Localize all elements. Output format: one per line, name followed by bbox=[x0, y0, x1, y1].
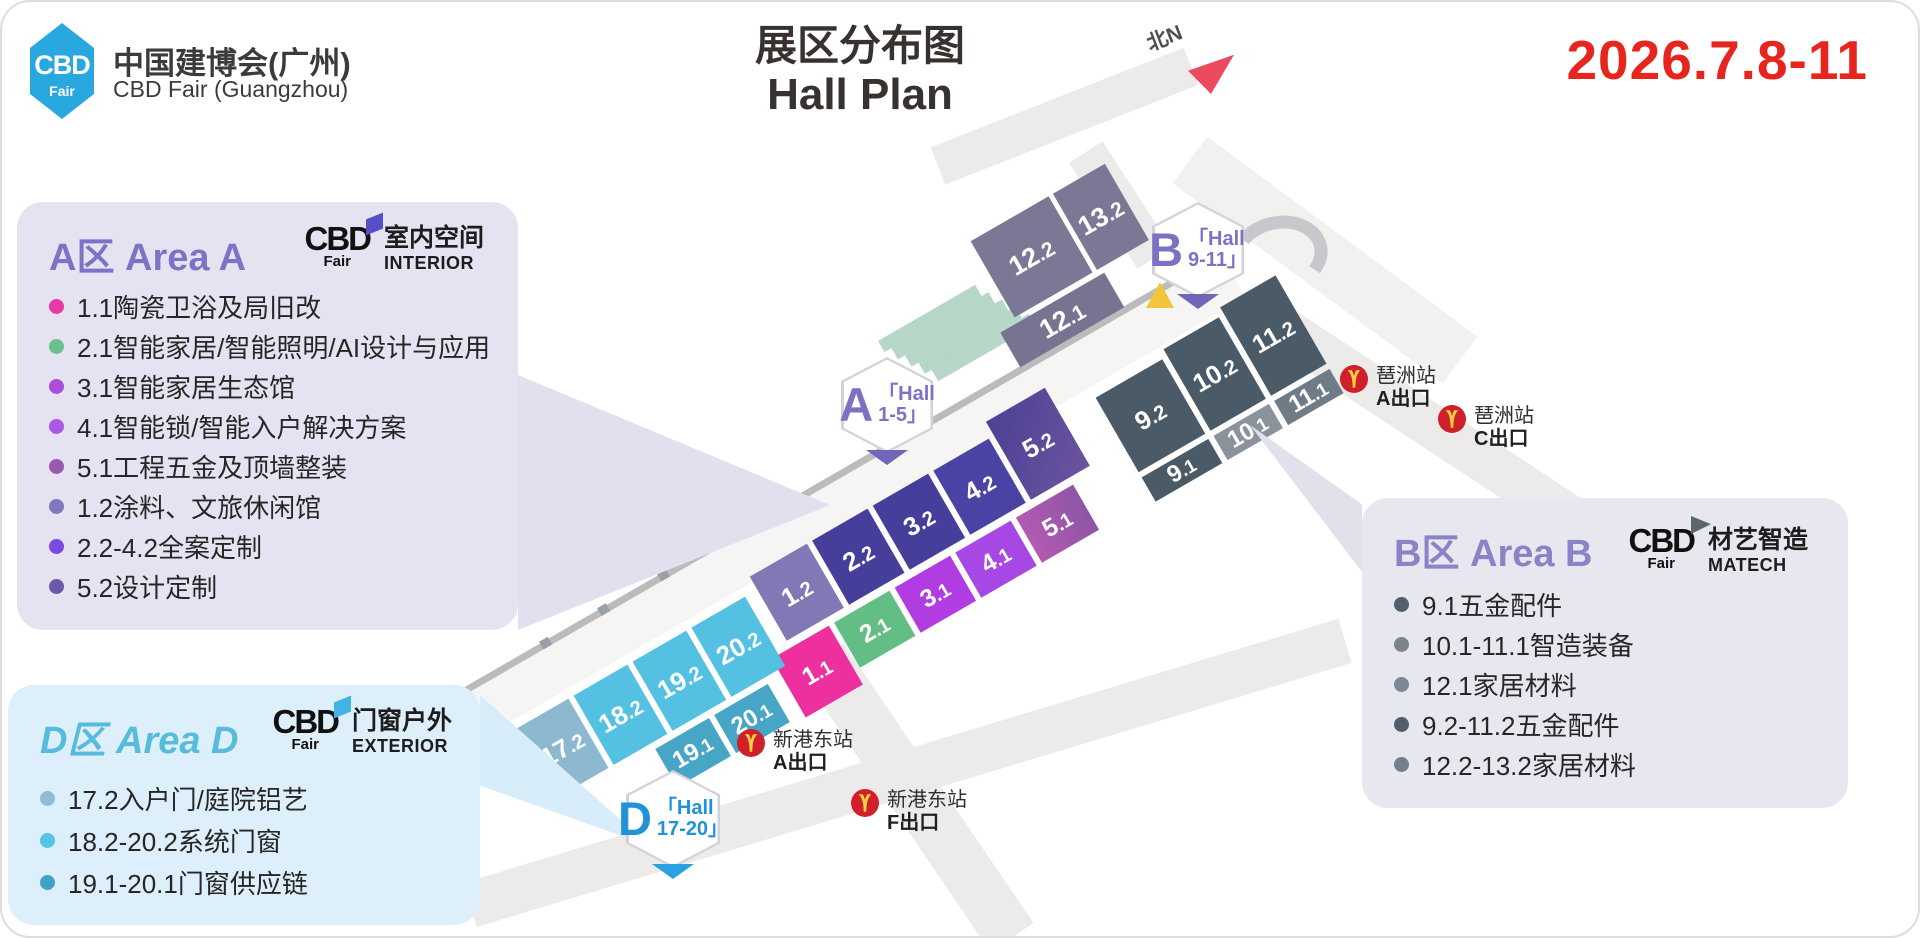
area-a-title: A区 Area A bbox=[49, 226, 246, 281]
exterior-flag-icon bbox=[334, 696, 351, 719]
brand-name-en: CBD Fair (Guangzhou) bbox=[113, 76, 348, 103]
metro-icon bbox=[1340, 365, 1368, 393]
legend-dot bbox=[40, 833, 55, 848]
legend-item: 9.2-11.2五金配件 bbox=[1394, 704, 1828, 744]
exterior-logo: CBD Fair 门窗户外 EXTERIOR bbox=[272, 707, 452, 757]
legend-dot bbox=[49, 539, 64, 554]
legend-item: 4.1智能锁/智能入户解决方案 bbox=[49, 406, 498, 446]
metro-icon bbox=[737, 729, 765, 757]
logo-cbd-text: CBD bbox=[30, 50, 94, 81]
legend-dot bbox=[49, 419, 64, 434]
station-xingangdong-exit-a: 新港东站A出口 bbox=[737, 729, 853, 775]
legend-panel-area-b: B区 Area B CBD Fair 材艺智造 MATECH 9.1五金配件 1… bbox=[1362, 498, 1848, 808]
north-arrow-icon bbox=[1188, 54, 1234, 94]
legend-dot bbox=[1394, 717, 1409, 732]
event-date: 2026.7.8-11 bbox=[1566, 28, 1868, 92]
area-a-legend-list: 1.1陶瓷卫浴及局旧改 2.1智能家居/智能照明/AI设计与应用 3.1智能家居… bbox=[49, 286, 498, 606]
hall-plan-canvas: 北N 12.2 13.2 12.1 9.2 9.1 10.2 10.1 11.2… bbox=[0, 0, 1920, 938]
badge-hall-d: D 「Hall17-20」 bbox=[626, 770, 720, 868]
area-d-title: D区 Area D bbox=[40, 709, 239, 764]
legend-item: 2.1智能家居/智能照明/AI设计与应用 bbox=[49, 326, 498, 366]
legend-dot bbox=[49, 299, 64, 314]
station-xingangdong-exit-f: 新港东站F出口 bbox=[851, 789, 967, 835]
legend-dot bbox=[1394, 757, 1409, 772]
page-title-en: Hall Plan bbox=[660, 70, 1060, 120]
matech-logo: CBD Fair 材艺智造 MATECH bbox=[1628, 526, 1808, 576]
cbd-fair-logo: CBD Fair bbox=[30, 23, 94, 119]
legend-dot bbox=[49, 379, 64, 394]
legend-item: 2.2-4.2全案定制 bbox=[49, 526, 498, 566]
legend-item: 10.1-11.1智造装备 bbox=[1394, 624, 1828, 664]
legend-item: 12.1家居材料 bbox=[1394, 664, 1828, 704]
legend-dot bbox=[1394, 677, 1409, 692]
legend-item: 12.2-13.2家居材料 bbox=[1394, 744, 1828, 784]
legend-item: 9.1五金配件 bbox=[1394, 584, 1828, 624]
legend-item: 17.2入户门/庭院铝艺 bbox=[40, 777, 460, 819]
area-b-callout-wedge bbox=[1250, 425, 1362, 572]
legend-dot bbox=[49, 339, 64, 354]
legend-item: 19.1-20.1门窗供应链 bbox=[40, 861, 460, 903]
station-pazhou-exit-a: 琶洲站A出口 bbox=[1340, 365, 1436, 411]
interior-logo: CBD Fair 室内空间 INTERIOR bbox=[304, 224, 484, 274]
legend-item: 18.2-20.2系统门窗 bbox=[40, 819, 460, 861]
legend-panel-area-d: D区 Area D CBD Fair 门窗户外 EXTERIOR 17.2入户门… bbox=[8, 685, 480, 925]
metro-icon bbox=[851, 789, 879, 817]
legend-panel-area-a: A区 Area A CBD Fair 室内空间 INTERIOR 1.1陶瓷卫浴… bbox=[17, 202, 518, 630]
area-b-title: B区 Area B bbox=[1394, 522, 1593, 577]
page-title-cn: 展区分布图 bbox=[660, 12, 1060, 73]
badge-hall-a: A 「Hall1-5」 bbox=[841, 357, 933, 453]
area-b-legend-list: 9.1五金配件 10.1-11.1智造装备 12.1家居材料 9.2-11.2五… bbox=[1394, 584, 1828, 784]
legend-dot bbox=[49, 499, 64, 514]
legend-dot bbox=[40, 791, 55, 806]
legend-dot bbox=[1394, 637, 1409, 652]
legend-dot bbox=[49, 579, 64, 594]
badge-hall-b: B 「Hall9-11」 bbox=[1152, 202, 1244, 298]
metro-icon bbox=[1438, 405, 1466, 433]
area-d-legend-list: 17.2入户门/庭院铝艺 18.2-20.2系统门窗 19.1-20.1门窗供应… bbox=[40, 777, 460, 903]
station-pazhou-exit-c: 琶洲站C出口 bbox=[1438, 405, 1534, 451]
legend-item: 3.1智能家居生态馆 bbox=[49, 366, 498, 406]
legend-item: 1.1陶瓷卫浴及局旧改 bbox=[49, 286, 498, 326]
legend-item: 1.2涂料、文旅休闲馆 bbox=[49, 486, 498, 526]
legend-dot bbox=[40, 875, 55, 890]
legend-dot bbox=[1394, 597, 1409, 612]
legend-item: 5.2设计定制 bbox=[49, 566, 498, 606]
logo-fair-text: Fair bbox=[30, 83, 94, 99]
interior-flag-icon bbox=[366, 213, 383, 236]
legend-dot bbox=[49, 459, 64, 474]
legend-item: 5.1工程五金及顶墙整装 bbox=[49, 446, 498, 486]
